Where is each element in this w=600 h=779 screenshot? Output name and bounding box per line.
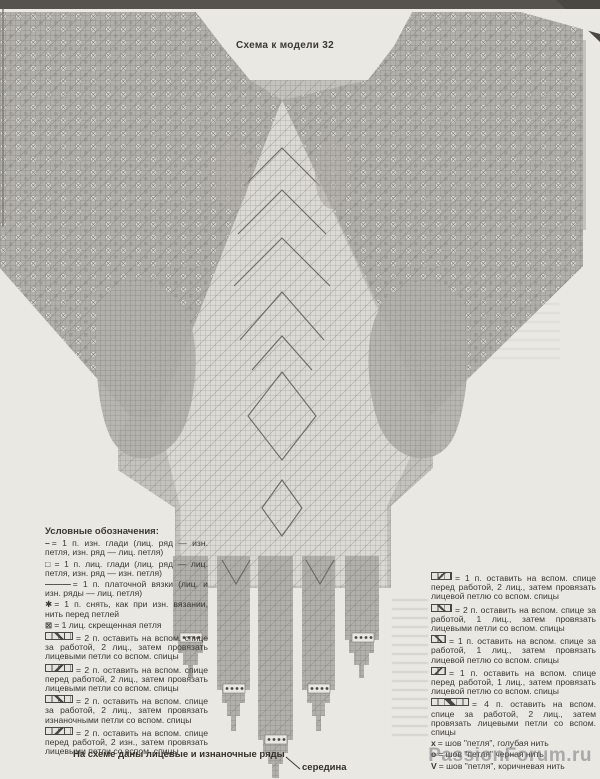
legend-item: = 1 п. оставить на вспом. спице перед ра… xyxy=(431,572,596,602)
legend-item-text: = 1 п. изн. глади (лиц. ряд — изн. петля… xyxy=(45,538,208,557)
footer-note: На схеме даны лицевые и изнаночные ряды xyxy=(73,749,285,760)
page-bleed-texture xyxy=(392,596,428,736)
legend-item-text: = 1 п. лиц. глади (лиц. ряд — лиц. петля… xyxy=(45,559,208,578)
legend-item: = 4 п. оставить на вспом. спице за работ… xyxy=(431,698,596,737)
crossed-stitch-icon: ⊠ xyxy=(45,620,52,630)
cable-2-2-back-purl-icon xyxy=(45,695,73,703)
cable-2-1-back-icon xyxy=(431,604,452,612)
legend-item-text: = 1 лиц. скрещенная петля xyxy=(54,620,161,630)
legend-item: ———= 1 п. платочной вязки (лиц. и изн. р… xyxy=(45,580,208,598)
cable-4-2-back-icon xyxy=(431,698,469,706)
legend-item: = 2 п. оставить на вспом. спице за работ… xyxy=(431,604,596,634)
legend-left-column: Условные обозначения: –= 1 п. изн. глади… xyxy=(45,527,208,758)
cable-2-2-front-icon xyxy=(45,664,73,672)
cable-2-2-back-icon xyxy=(45,632,73,640)
scanned-magazine-page: Схема к модели 32 Условные обозначения: … xyxy=(0,0,600,779)
legend-item: □= 1 п. лиц. глади (лиц. ряд — лиц. петл… xyxy=(45,560,208,578)
center-pointer-line xyxy=(286,757,300,769)
legend-item: –= 1 п. изн. глади (лиц. ряд — изн. петл… xyxy=(45,539,208,557)
legend-header: Условные обозначения: xyxy=(45,527,208,536)
center-label: середина xyxy=(302,762,347,773)
leaf-motif-upper-left xyxy=(215,141,249,209)
cable-1-2-front-icon xyxy=(431,572,452,580)
cable-1-1-back-icon xyxy=(431,635,446,643)
page-bleed-texture xyxy=(440,300,560,360)
legend-item: = 2 п. оставить на вспом. спице за работ… xyxy=(45,632,208,662)
scan-top-bar xyxy=(0,0,600,9)
legend-item: ⊠= 1 лиц. скрещенная петля xyxy=(45,621,208,630)
legend-item-text: = 2 п. оставить на вспом. спице за работ… xyxy=(431,605,596,633)
legend-item: = 1 п. оставить на вспом. спице перед ра… xyxy=(431,667,596,697)
legend-item-text: = 1 п. оставить на вспом. спице перед ра… xyxy=(431,573,596,601)
page-title: Схема к модели 32 xyxy=(205,40,365,51)
seam-marks xyxy=(223,684,245,693)
scan-edge-shade xyxy=(583,40,586,230)
leaf-motif-upper-right xyxy=(315,141,349,209)
legend-item: = 2 п. оставить на вспом. спице за работ… xyxy=(45,695,208,725)
seam-marks xyxy=(265,735,287,744)
cable-1-1-front-icon xyxy=(431,667,446,675)
seam-marks xyxy=(308,684,330,693)
leaf-motif-left xyxy=(96,281,196,459)
watermark: PassionForum.ru xyxy=(428,745,592,767)
legend-item-text: = 1 п. оставить на вспом. спице за работ… xyxy=(431,636,596,664)
seam-marks xyxy=(352,633,374,642)
legend-item-text: = 1 п. оставить на вспом. спице перед ра… xyxy=(431,668,596,696)
legend-item-text: = 1 п. снять, как при изн. вязании, нить… xyxy=(45,599,208,618)
scan-spine-line xyxy=(2,9,4,227)
legend-right-column: = 1 п. оставить на вспом. спице перед ра… xyxy=(431,572,596,773)
legend-item: = 2 п. оставить на вспом. спице перед ра… xyxy=(45,664,208,694)
legend-item: ✱= 1 п. снять, как при изн. вязании, нит… xyxy=(45,600,208,618)
legend-item: = 1 п. оставить на вспом. спице за работ… xyxy=(431,635,596,665)
cable-2-2-front-purl-icon xyxy=(45,727,73,735)
